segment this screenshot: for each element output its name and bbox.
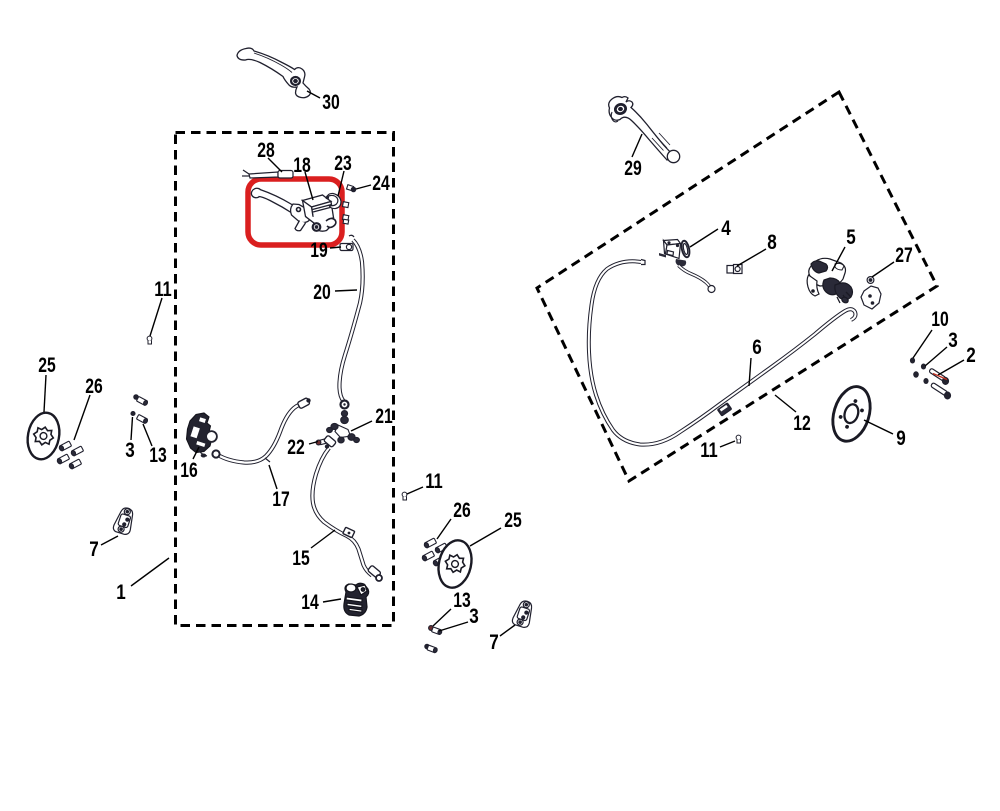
svg-text:22: 22 (287, 436, 305, 459)
svg-text:3: 3 (469, 605, 479, 628)
svg-text:6: 6 (752, 336, 762, 359)
svg-text:12: 12 (793, 412, 811, 435)
svg-text:30: 30 (322, 91, 340, 114)
svg-text:26: 26 (453, 499, 471, 522)
svg-text:11: 11 (425, 470, 443, 493)
svg-text:10: 10 (931, 308, 949, 331)
svg-text:27: 27 (895, 244, 913, 267)
svg-text:5: 5 (846, 226, 856, 249)
svg-text:9: 9 (896, 427, 906, 450)
svg-text:14: 14 (301, 591, 319, 614)
svg-text:4: 4 (721, 217, 731, 240)
svg-text:28: 28 (257, 139, 275, 162)
svg-text:2: 2 (966, 344, 976, 367)
svg-text:11: 11 (700, 439, 718, 462)
svg-text:17: 17 (272, 488, 290, 511)
svg-text:13: 13 (149, 444, 167, 467)
svg-text:26: 26 (85, 375, 103, 398)
svg-text:25: 25 (504, 509, 522, 532)
svg-text:25: 25 (38, 354, 56, 377)
svg-text:15: 15 (292, 547, 310, 570)
svg-text:23: 23 (334, 152, 352, 175)
svg-text:19: 19 (310, 239, 328, 262)
svg-text:24: 24 (372, 172, 390, 195)
svg-text:11: 11 (154, 278, 172, 301)
svg-text:29: 29 (624, 157, 642, 180)
svg-text:21: 21 (375, 405, 393, 428)
svg-text:1: 1 (116, 581, 126, 604)
svg-text:8: 8 (767, 231, 777, 254)
svg-text:3: 3 (125, 439, 135, 462)
svg-text:16: 16 (180, 459, 198, 482)
svg-text:13: 13 (453, 589, 471, 612)
svg-text:20: 20 (313, 281, 331, 304)
svg-text:3: 3 (948, 329, 958, 352)
svg-text:7: 7 (489, 631, 499, 654)
svg-text:7: 7 (89, 538, 99, 561)
svg-text:18: 18 (293, 154, 311, 177)
